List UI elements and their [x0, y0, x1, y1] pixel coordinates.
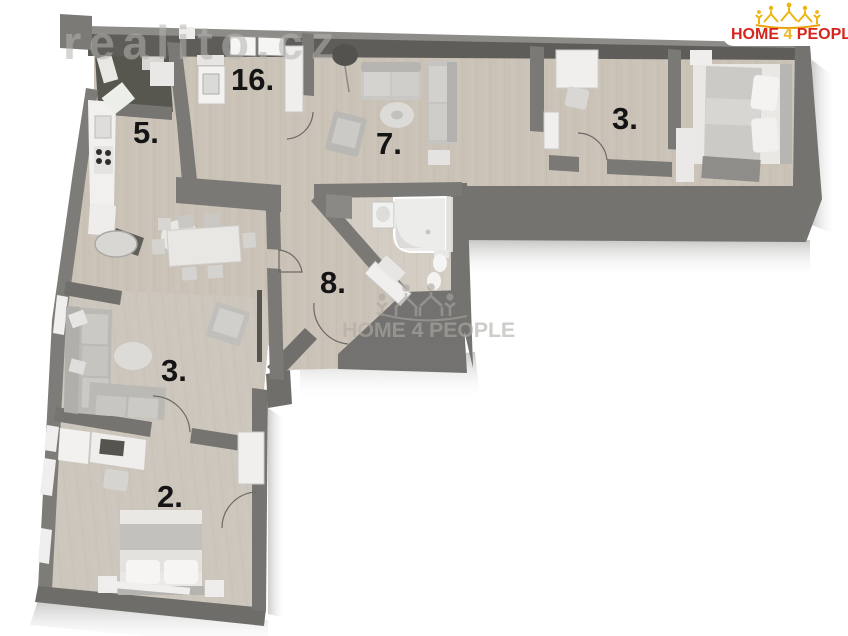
- svg-text:HOME 4 PEOPLE: HOME 4 PEOPLE: [342, 318, 515, 342]
- svg-text:5.: 5.: [133, 115, 159, 150]
- svg-text:HOME 4 PEOPLE: HOME 4 PEOPLE: [731, 26, 848, 43]
- svg-text:8.: 8.: [320, 265, 346, 300]
- svg-text:3.: 3.: [161, 353, 187, 388]
- svg-text:3.: 3.: [612, 101, 638, 136]
- svg-text:realito.cz: realito.cz: [63, 16, 342, 69]
- svg-text:7.: 7.: [376, 126, 402, 161]
- svg-text:2.: 2.: [157, 479, 183, 514]
